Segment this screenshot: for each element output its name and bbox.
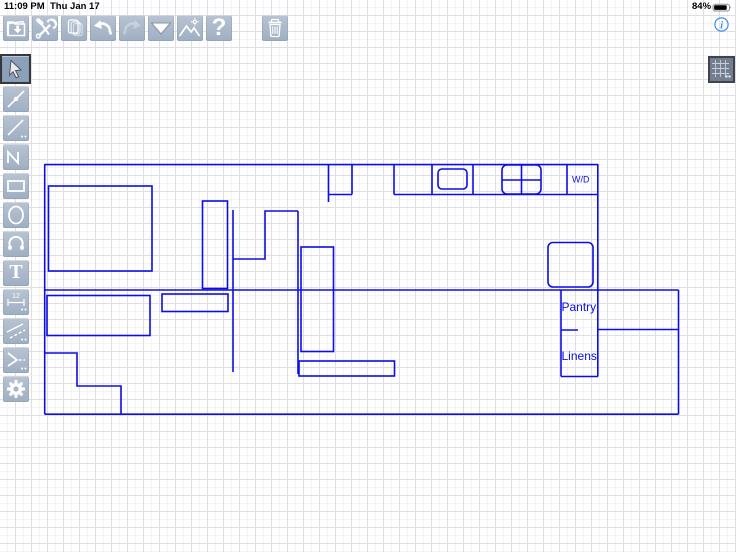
svg-text:W/D: W/D [572,175,590,185]
svg-text:Linens: Linens [562,349,597,363]
svg-text:Pantry: Pantry [562,300,597,314]
